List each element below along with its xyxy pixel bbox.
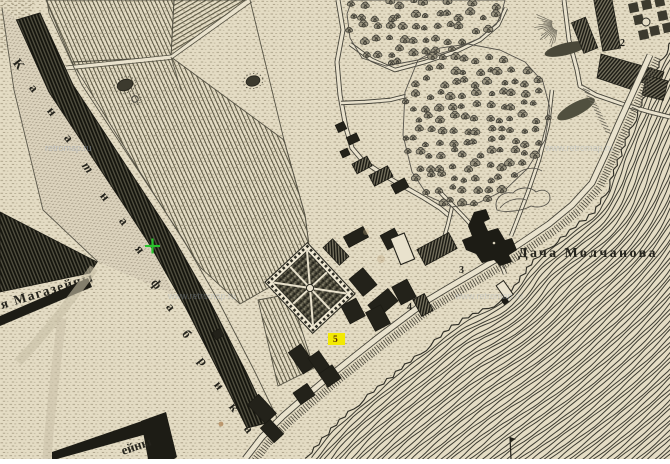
- svg-text:5: 5: [333, 335, 338, 345]
- svg-text:www.retromap.ru: www.retromap.ru: [544, 143, 613, 153]
- svg-text:www.retromap.ru: www.retromap.ru: [454, 291, 523, 301]
- svg-text:Дача Молчанова: Дача Молчанова: [518, 246, 658, 261]
- svg-text:3: 3: [459, 265, 464, 276]
- svg-text:4: 4: [407, 302, 412, 313]
- svg-text:2: 2: [620, 38, 625, 49]
- svg-text:retromap.ru: retromap.ru: [45, 143, 92, 153]
- svg-text:www.retromap.ru: www.retromap.ru: [167, 291, 236, 301]
